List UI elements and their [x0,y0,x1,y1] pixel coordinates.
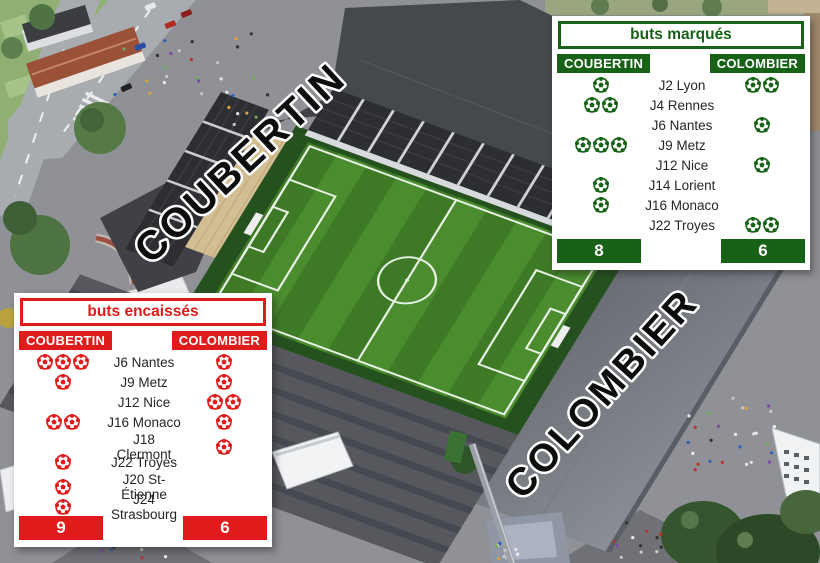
soccer-ball-icon [216,374,232,390]
balls-colombier [181,374,267,390]
balls-colombier [181,394,267,410]
balls-colombier [181,439,267,455]
soccer-ball-icon [575,137,591,153]
column-header-colombier: COLOMBIER [172,331,267,350]
table-row: J4 Rennes [557,95,805,115]
soccer-ball-icon [611,137,627,153]
soccer-ball-icon [602,97,618,113]
soccer-ball-icon [216,354,232,370]
soccer-ball-icon [46,414,62,430]
balls-coubertin [19,479,107,495]
balls-colombier [181,414,267,430]
row-label: J14 Lorient [645,178,719,193]
total-colombier: 6 [721,239,805,263]
soccer-ball-icon [584,97,600,113]
row-label: J2 Lyon [645,78,719,93]
soccer-ball-icon [754,117,770,133]
soccer-ball-icon [216,414,232,430]
soccer-ball-icon [73,354,89,370]
balls-coubertin [557,97,645,113]
soccer-ball-icon [754,157,770,173]
soccer-ball-icon [763,77,779,93]
soccer-ball-icon [216,439,232,455]
balls-coubertin [557,77,645,93]
balls-coubertin [557,197,645,213]
soccer-ball-icon [207,394,223,410]
soccer-ball-icon [37,354,53,370]
table-row: J6 Nantes [19,352,267,372]
balls-coubertin [19,354,107,370]
soccer-ball-icon [593,177,609,193]
row-label: J4 Rennes [645,98,719,113]
table-row: J20 St-Étienne [19,472,267,492]
soccer-ball-icon [55,499,71,515]
soccer-ball-icon [64,414,80,430]
table-row: J22 Troyes [19,452,267,472]
row-label: J16 Monaco [645,198,719,213]
table-row: J2 Lyon [557,75,805,95]
table-row: J6 Nantes [557,115,805,135]
soccer-ball-icon [225,394,241,410]
soccer-ball-icon [593,77,609,93]
column-header-coubertin: COUBERTIN [19,331,112,350]
soccer-ball-icon [763,217,779,233]
row-label: J22 Troyes [645,218,719,233]
total-coubertin: 8 [557,239,641,263]
balls-coubertin [557,137,645,153]
balls-coubertin [19,374,107,390]
stadium-infographic: COUBERTIN COLOMBIER buts marqués COUBERT… [0,0,820,563]
goals-conceded-panel: buts encaissés COUBERTIN COLOMBIER J6 Na… [14,293,272,547]
soccer-ball-icon [55,374,71,390]
row-label: J24 Strasbourg [107,492,181,522]
soccer-ball-icon [593,137,609,153]
goals-scored-panel: buts marqués COUBERTIN COLOMBIER J2 Lyon… [552,16,810,270]
table-row: J9 Metz [19,372,267,392]
balls-coubertin [557,177,645,193]
balls-coubertin [19,499,107,515]
rows-conceded: J6 Nantes J9 Metz J12 Nice J1 [19,352,267,512]
soccer-ball-icon [745,217,761,233]
balls-colombier [719,117,805,133]
column-header-coubertin: COUBERTIN [557,54,650,73]
table-row: J14 Lorient [557,175,805,195]
row-label: J6 Nantes [107,355,181,370]
balls-coubertin [19,454,107,470]
table-row: J24 Strasbourg [19,492,267,512]
table-row: J22 Troyes [557,215,805,235]
row-label: J9 Metz [107,375,181,390]
table-row: J12 Nice [557,155,805,175]
table-row: J12 Nice [19,392,267,412]
soccer-ball-icon [745,77,761,93]
row-label: J16 Monaco [107,415,181,430]
soccer-ball-icon [55,479,71,495]
panel-title: buts marqués [558,21,804,49]
row-label: J22 Troyes [107,455,181,470]
column-header-colombier: COLOMBIER [710,54,805,73]
table-row: J18 Clermont [19,432,267,452]
total-coubertin: 9 [19,516,103,540]
soccer-ball-icon [55,454,71,470]
balls-colombier [719,157,805,173]
balls-colombier [181,354,267,370]
row-label: J12 Nice [645,158,719,173]
balls-colombier [719,77,805,93]
table-row: J16 Monaco [19,412,267,432]
balls-coubertin [19,414,107,430]
soccer-ball-icon [55,354,71,370]
table-row: J9 Metz [557,135,805,155]
row-label: J9 Metz [645,138,719,153]
panel-title: buts encaissés [20,298,266,326]
balls-colombier [719,217,805,233]
total-colombier: 6 [183,516,267,540]
row-label: J12 Nice [107,395,181,410]
soccer-ball-icon [593,197,609,213]
row-label: J6 Nantes [645,118,719,133]
table-row: J16 Monaco [557,195,805,215]
rows-scored: J2 Lyon J4 Rennes J6 Nantes J [557,75,805,235]
